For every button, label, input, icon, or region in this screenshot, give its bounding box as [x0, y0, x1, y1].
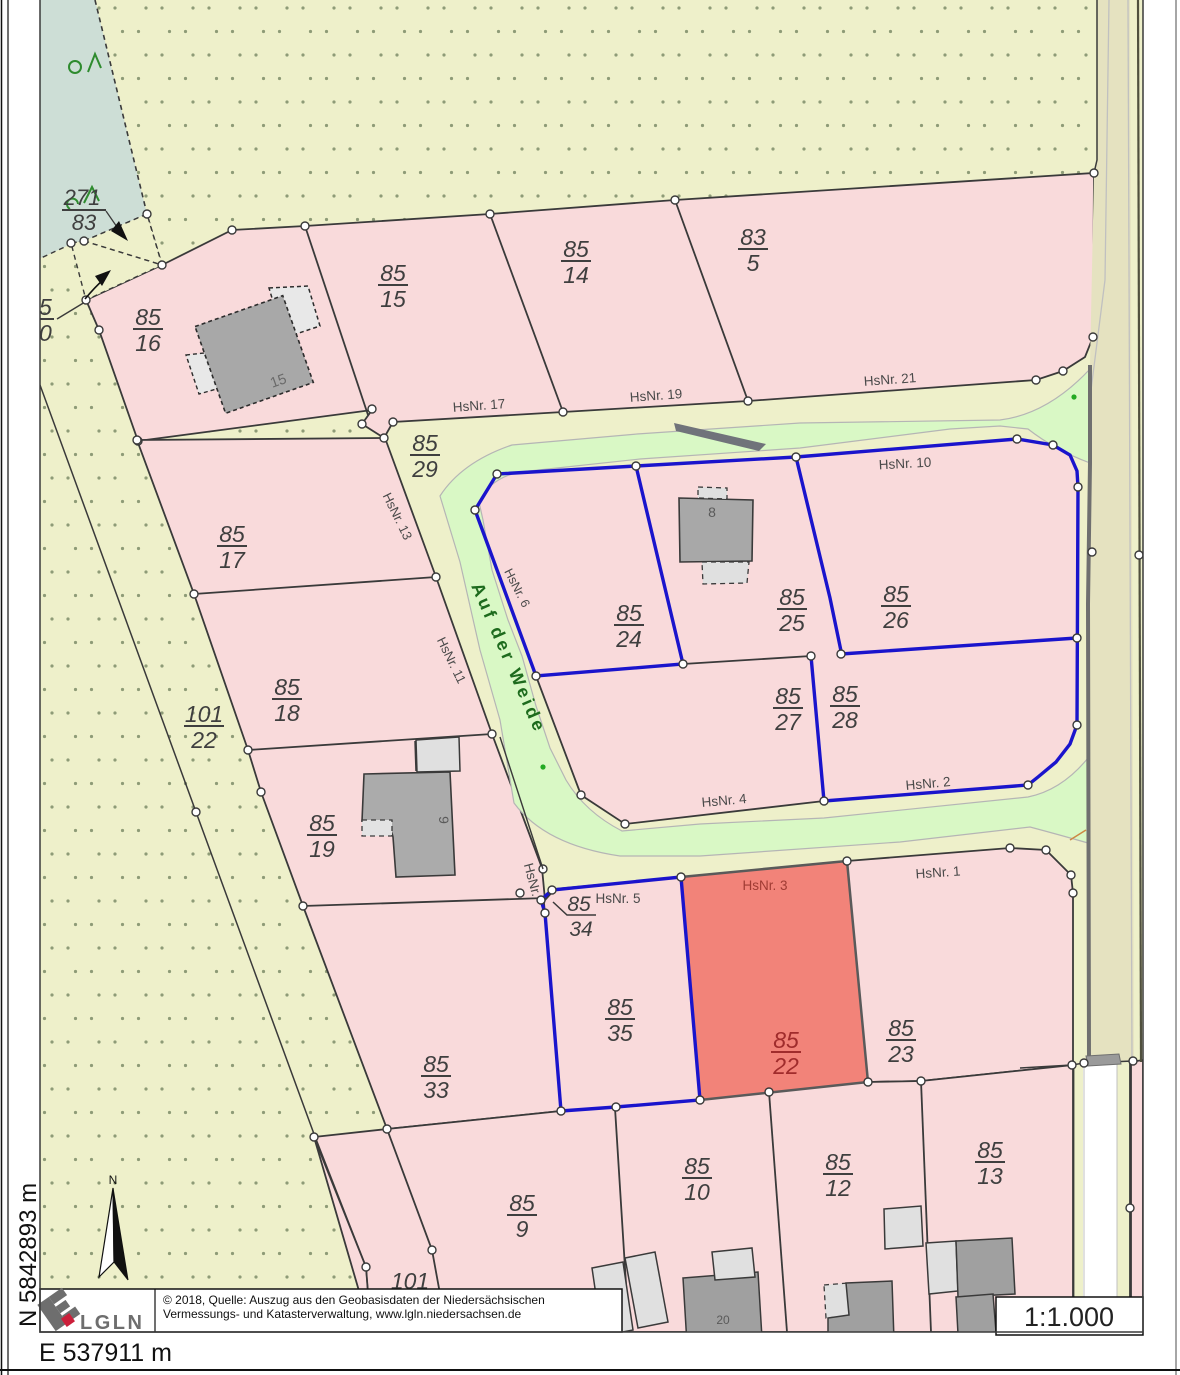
svg-text:24: 24: [615, 626, 642, 652]
svg-text:85: 85: [274, 674, 300, 700]
svg-text:29: 29: [411, 456, 438, 482]
svg-text:85: 85: [616, 600, 642, 626]
svg-text:HsNr. 5: HsNr. 5: [595, 891, 640, 906]
svg-text:85: 85: [423, 1051, 449, 1077]
svg-text:© 2018, Quelle: Auszug aus den: © 2018, Quelle: Auszug aus den Geobasisd…: [163, 1293, 545, 1307]
svg-text:LGLN: LGLN: [80, 1312, 144, 1334]
svg-text:12: 12: [825, 1175, 851, 1201]
svg-text:Vermessungs- und Katasterverwa: Vermessungs- und Katasterverwaltung, www…: [163, 1307, 522, 1321]
svg-text:20: 20: [716, 1313, 730, 1327]
svg-text:9: 9: [516, 1216, 529, 1242]
svg-text:5: 5: [747, 250, 760, 276]
svg-text:85: 85: [309, 810, 335, 836]
svg-text:85: 85: [607, 994, 633, 1020]
svg-text:16: 16: [135, 330, 161, 356]
svg-text:34: 34: [569, 918, 592, 941]
svg-text:25: 25: [778, 610, 805, 636]
svg-text:85: 85: [509, 1190, 535, 1216]
svg-text:8: 8: [708, 504, 716, 520]
svg-text:85: 85: [380, 260, 406, 286]
svg-text:35: 35: [607, 1020, 633, 1046]
svg-text:271: 271: [63, 185, 101, 210]
svg-text:85: 85: [883, 581, 909, 607]
svg-text:10: 10: [684, 1179, 710, 1205]
svg-text:27: 27: [774, 709, 802, 735]
svg-text:HsNr. 10: HsNr. 10: [878, 455, 931, 473]
svg-text:85: 85: [779, 584, 805, 610]
svg-text:N 5842893 m: N 5842893 m: [15, 1183, 42, 1327]
svg-text:22: 22: [190, 727, 217, 753]
svg-text:33: 33: [423, 1077, 449, 1103]
svg-text:83: 83: [740, 224, 766, 250]
svg-text:85: 85: [888, 1015, 914, 1041]
svg-text:85: 85: [977, 1137, 1003, 1163]
svg-text:101: 101: [185, 701, 223, 727]
svg-text:HsNr. 1: HsNr. 1: [915, 863, 961, 881]
svg-text:26: 26: [882, 607, 909, 633]
svg-text:85: 85: [135, 304, 161, 330]
svg-text:85: 85: [684, 1153, 710, 1179]
svg-text:85: 85: [773, 1027, 799, 1053]
svg-text:19: 19: [309, 836, 335, 862]
svg-text:22: 22: [772, 1053, 799, 1079]
svg-text:HsNr. 3: HsNr. 3: [742, 878, 787, 893]
svg-text:17: 17: [219, 547, 246, 573]
svg-text:23: 23: [887, 1041, 914, 1067]
svg-text:85: 85: [219, 521, 245, 547]
svg-text:85: 85: [832, 681, 858, 707]
svg-text:85: 85: [825, 1149, 851, 1175]
svg-text:85: 85: [412, 430, 438, 456]
svg-text:14: 14: [563, 262, 589, 288]
svg-text:85: 85: [567, 893, 591, 916]
svg-text:83: 83: [72, 210, 97, 235]
svg-text:E 537911 m: E 537911 m: [39, 1339, 172, 1367]
svg-text:85: 85: [775, 683, 801, 709]
svg-text:85: 85: [563, 236, 589, 262]
svg-text:15: 15: [380, 286, 406, 312]
svg-text:1:1.000: 1:1.000: [1024, 1302, 1114, 1332]
svg-text:28: 28: [831, 707, 858, 733]
svg-text:9: 9: [436, 816, 452, 824]
svg-text:N: N: [109, 1173, 118, 1187]
svg-text:13: 13: [977, 1163, 1003, 1189]
svg-text:18: 18: [274, 700, 300, 726]
